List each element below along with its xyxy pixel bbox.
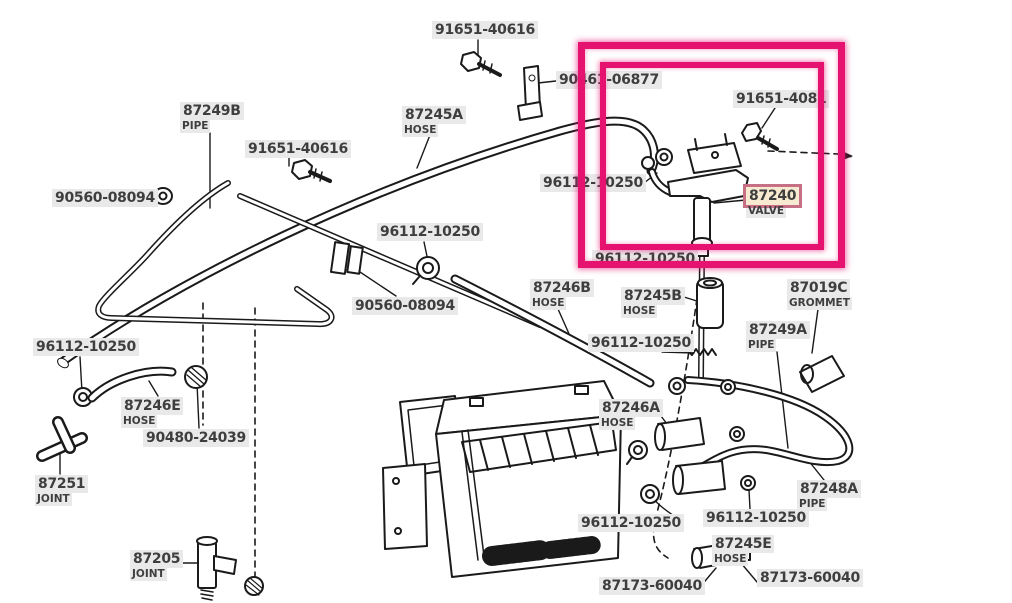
part-number: 87245E bbox=[712, 535, 774, 553]
part-number: 90480-24039 bbox=[143, 429, 249, 447]
part-label[interactable]: 90480-24039 bbox=[143, 429, 249, 447]
part-number: 87249B bbox=[180, 102, 244, 120]
part-type-label: HOSE bbox=[621, 305, 657, 318]
highlight-box-inner bbox=[600, 62, 824, 250]
part-label[interactable]: 96112-10250 bbox=[377, 223, 483, 241]
part-number: 87246E bbox=[121, 397, 183, 415]
part-number: 90560-08094 bbox=[352, 297, 458, 315]
part-label[interactable]: 87245AHOSE bbox=[402, 106, 466, 137]
part-number: 87248A bbox=[797, 480, 861, 498]
part-type-label: HOSE bbox=[402, 124, 438, 137]
parts-diagram: 91651-4061690461-0687791651-408187249BPI… bbox=[0, 0, 1012, 603]
part-number: 87245A bbox=[402, 106, 466, 124]
part-type-label: PIPE bbox=[180, 120, 210, 133]
part-label[interactable]: 87205JOINT bbox=[130, 550, 183, 581]
part-label[interactable]: 87249APIPE bbox=[746, 321, 810, 352]
part-number: 87173-60040 bbox=[757, 569, 863, 587]
t-joint bbox=[42, 422, 82, 456]
part-label[interactable]: 87245EHOSE bbox=[712, 535, 774, 566]
part-type-label: PIPE bbox=[746, 339, 776, 352]
part-number: 96112-10250 bbox=[377, 223, 483, 241]
part-number: 96112-10250 bbox=[703, 509, 809, 527]
part-type-label: JOINT bbox=[130, 568, 167, 581]
part-label[interactable]: 87173-60040 bbox=[599, 577, 705, 595]
part-label[interactable]: 87246EHOSE bbox=[121, 397, 183, 428]
part-type-label: HOSE bbox=[712, 553, 748, 566]
part-number: 87251 bbox=[35, 475, 88, 493]
part-number: 87019C bbox=[787, 279, 850, 297]
part-label[interactable]: 96112-10250 bbox=[33, 338, 139, 356]
part-label[interactable]: 87245BHOSE bbox=[621, 287, 685, 318]
part-type-label: GROMMET bbox=[787, 297, 852, 310]
part-label[interactable]: 87246AHOSE bbox=[599, 399, 663, 430]
part-label[interactable]: 90560-08094 bbox=[352, 297, 458, 315]
part-number: 87245B bbox=[621, 287, 685, 305]
part-number: 87246A bbox=[599, 399, 663, 417]
part-label[interactable]: 91651-40616 bbox=[245, 140, 351, 158]
part-label[interactable]: 87248APIPE bbox=[797, 480, 861, 511]
heater-unit bbox=[383, 381, 621, 577]
part-label[interactable]: 96112-10250 bbox=[578, 514, 684, 532]
part-label[interactable]: 96112-10250 bbox=[588, 334, 694, 352]
part-number: 96112-10250 bbox=[33, 338, 139, 356]
part-type-label: HOSE bbox=[121, 415, 157, 428]
part-label[interactable]: 87246BHOSE bbox=[530, 279, 594, 310]
part-label[interactable]: 87251JOINT bbox=[35, 475, 88, 506]
part-label[interactable]: 96112-10250 bbox=[703, 509, 809, 527]
part-number: 91651-40616 bbox=[245, 140, 351, 158]
part-number: 87205 bbox=[130, 550, 183, 568]
part-number: 96112-10250 bbox=[578, 514, 684, 532]
part-label[interactable]: 87019CGROMMET bbox=[787, 279, 852, 310]
part-label[interactable]: 90560-08094 bbox=[52, 189, 158, 207]
part-type-label: HOSE bbox=[599, 417, 635, 430]
part-number: 87246B bbox=[530, 279, 594, 297]
part-label[interactable]: 91651-40616 bbox=[432, 21, 538, 39]
drain-joint bbox=[197, 537, 263, 600]
part-number: 96112-10250 bbox=[588, 334, 694, 352]
part-number: 91651-40616 bbox=[432, 21, 538, 39]
part-type-label: HOSE bbox=[530, 297, 566, 310]
part-label[interactable]: 87173-60040 bbox=[757, 569, 863, 587]
diagram-line-art bbox=[0, 0, 1012, 603]
part-label[interactable]: 87249BPIPE bbox=[180, 102, 244, 133]
part-type-label: JOINT bbox=[35, 493, 72, 506]
part-number: 87173-60040 bbox=[599, 577, 705, 595]
part-number: 90560-08094 bbox=[52, 189, 158, 207]
part-number: 87249A bbox=[746, 321, 810, 339]
